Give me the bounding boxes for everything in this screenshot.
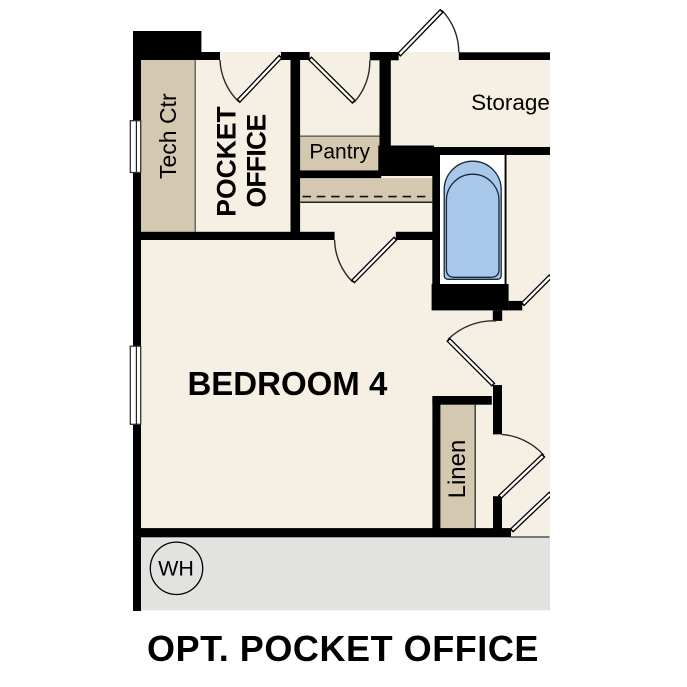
svg-text:WH: WH (158, 557, 194, 581)
svg-text:BEDROOM 4: BEDROOM 4 (187, 365, 388, 402)
svg-text:OFFICE: OFFICE (242, 114, 272, 207)
svg-text:POCKET: POCKET (212, 106, 242, 216)
svg-text:Pantry: Pantry (309, 140, 370, 163)
svg-text:OPT. POCKET OFFICE: OPT. POCKET OFFICE (147, 628, 539, 669)
svg-text:Storage: Storage (471, 90, 550, 115)
svg-text:Tech Ctr: Tech Ctr (155, 93, 181, 179)
svg-text:Linen: Linen (444, 440, 471, 499)
